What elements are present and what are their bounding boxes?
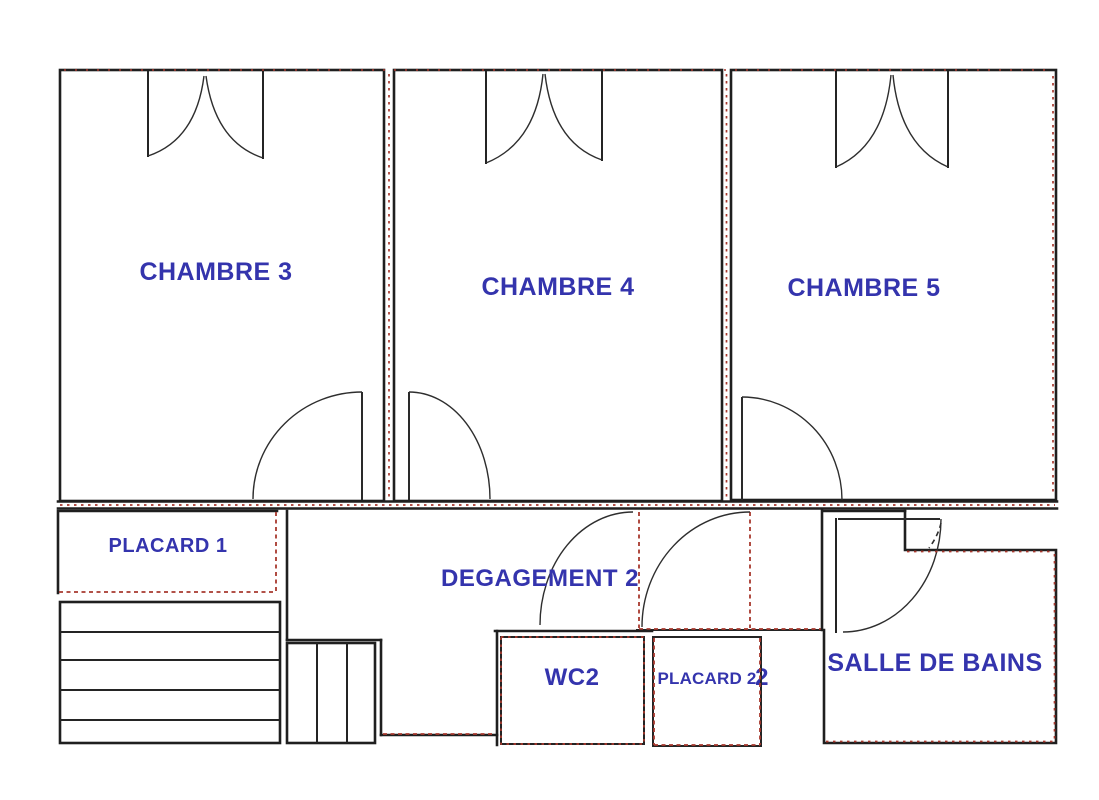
floor-plan-canvas: CHAMBRE 3 CHAMBRE 4 CHAMBRE 5 — [0, 0, 1099, 800]
placard-2-walls — [653, 637, 761, 746]
corridor-door-arc-2 — [642, 512, 750, 627]
hallway-north-wall — [58, 502, 1057, 509]
chambre-3-door — [253, 392, 362, 500]
chambre-4-door — [409, 392, 490, 500]
chambre-4-label: CHAMBRE 4 — [481, 273, 634, 301]
room-degagement-2: DEGAGEMENT 2 — [287, 510, 824, 735]
wc2-label: WC2 — [545, 664, 600, 691]
bathroom-door — [838, 519, 941, 632]
room-chambre-3: CHAMBRE 3 — [60, 70, 384, 501]
room-chambre-5: CHAMBRE 5 — [731, 70, 1056, 500]
chambre-5-window-icon — [836, 72, 948, 167]
stair-flight-upper — [287, 643, 375, 743]
room-salle-de-bains: SALLE DE BAINS — [824, 511, 1056, 743]
chambre-5-door — [742, 397, 842, 500]
floor-plan-page: CHAMBRE 3 CHAMBRE 4 CHAMBRE 5 — [0, 0, 1099, 800]
room-placard-2: PLACARD 2 — [653, 637, 761, 746]
chambre-3-window-icon — [148, 72, 263, 158]
placard-1-label: PLACARD 1 — [109, 535, 228, 557]
degagement-2-label: DEGAGEMENT 2 — [441, 565, 639, 592]
chambre-3-label: CHAMBRE 3 — [139, 258, 292, 286]
room-wc2: WC2 — [495, 631, 652, 745]
placard-2-label: PLACARD 2 — [657, 669, 756, 688]
chambre-5-label: CHAMBRE 5 — [787, 274, 940, 302]
room-placard-1: PLACARD 1 — [58, 511, 277, 593]
salle-de-bains-label: SALLE DE BAINS — [827, 649, 1042, 677]
staircase — [60, 602, 375, 743]
chambre-4-window-icon — [486, 72, 602, 163]
stair-flight-lower — [60, 602, 280, 743]
room-chambre-4: CHAMBRE 4 — [394, 70, 722, 501]
bathroom-walls — [824, 511, 1056, 743]
